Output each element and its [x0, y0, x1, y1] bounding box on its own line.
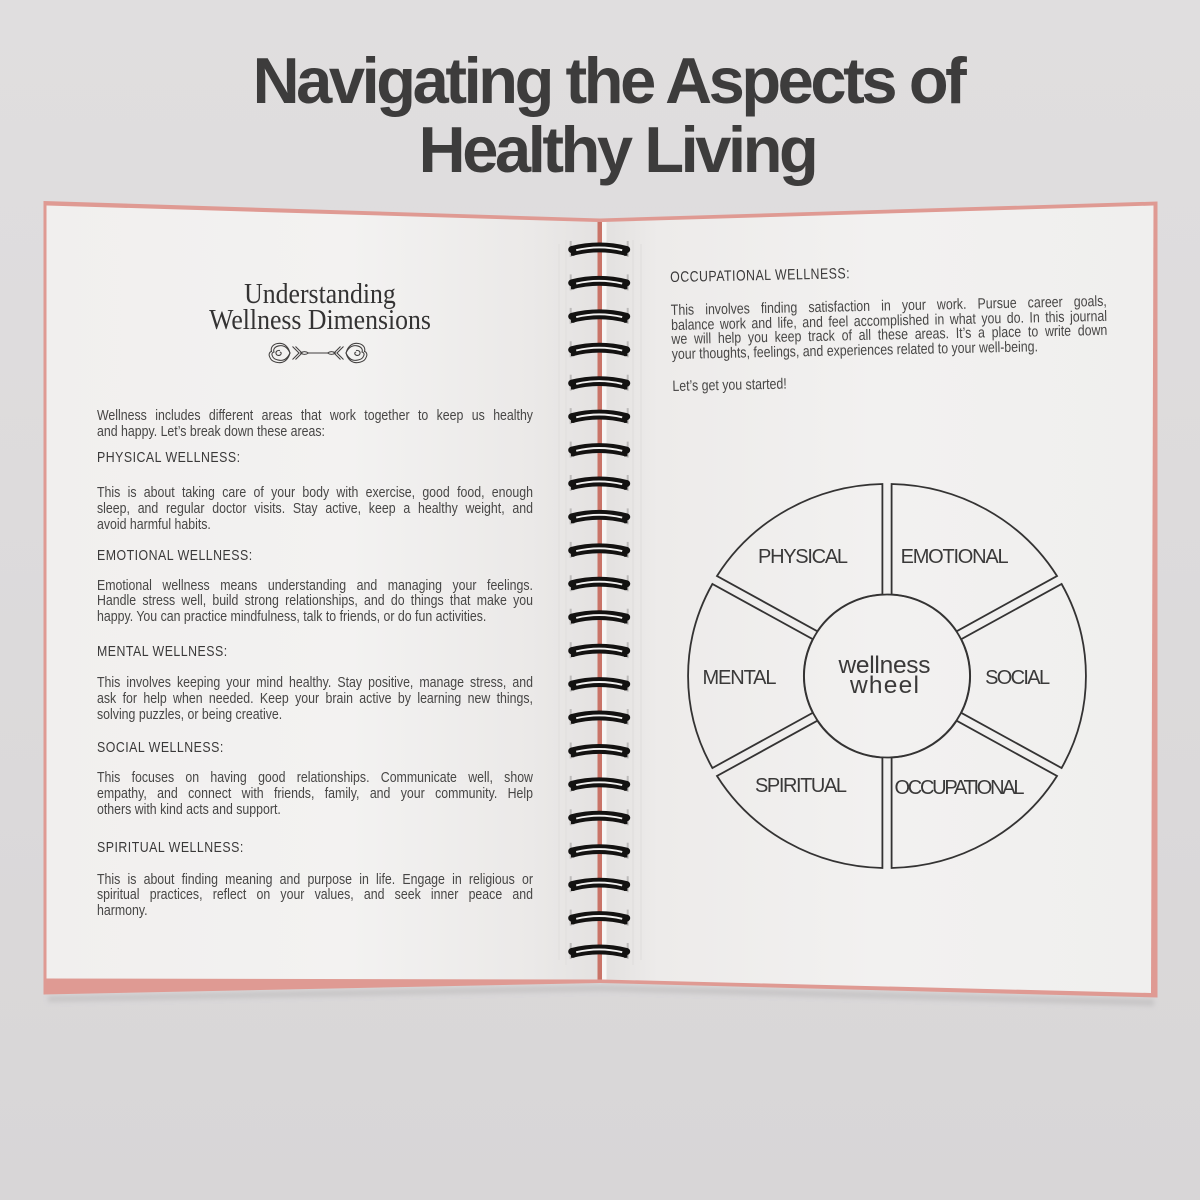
svg-text:OCCUPATIONAL: OCCUPATIONAL — [895, 777, 1025, 799]
svg-text:SOCIAL: SOCIAL — [985, 667, 1050, 689]
svg-text:MENTAL: MENTAL — [703, 667, 777, 689]
svg-text:PHYSICAL: PHYSICAL — [758, 546, 848, 568]
svg-text:SPIRITUAL: SPIRITUAL — [755, 775, 847, 797]
svg-text:EMOTIONAL: EMOTIONAL — [901, 546, 1009, 568]
svg-text:wheel: wheel — [849, 672, 919, 699]
